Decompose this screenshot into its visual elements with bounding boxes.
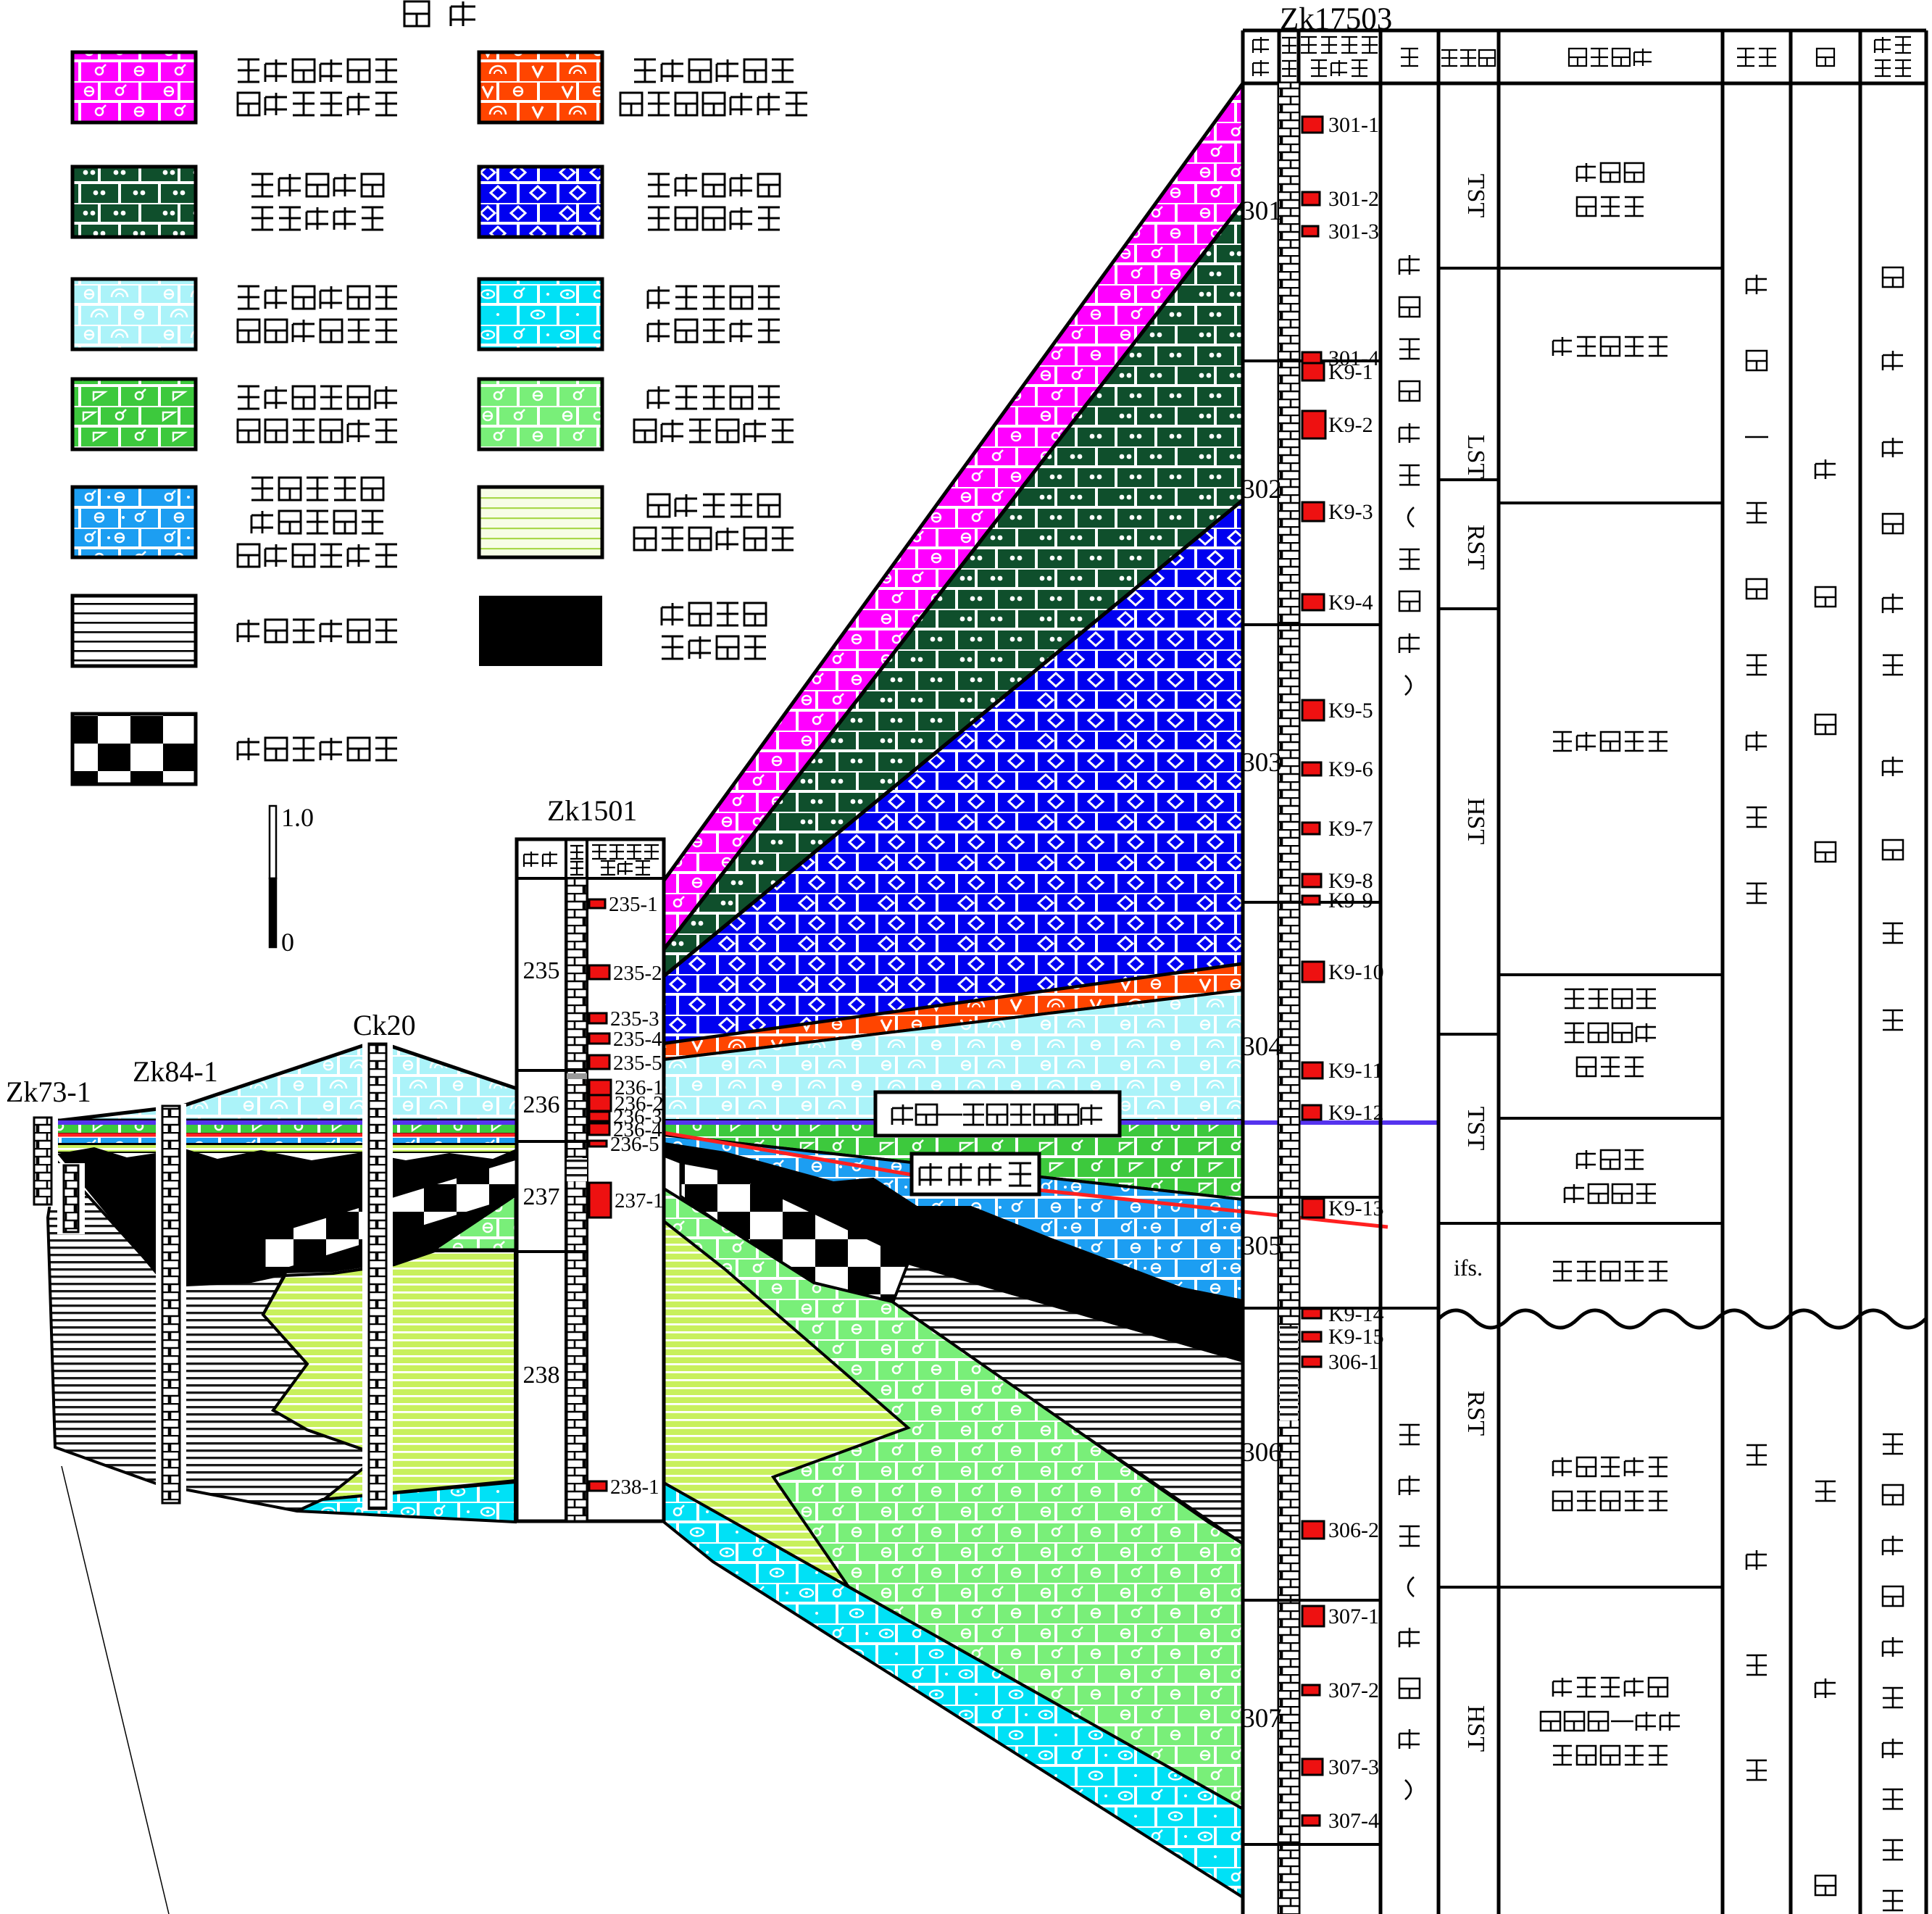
svg-text:K9-6: K9-6	[1328, 757, 1373, 781]
svg-text:303: 303	[1241, 748, 1282, 778]
svg-text:1.0: 1.0	[281, 803, 314, 832]
svg-text:238-1: 238-1	[610, 1476, 659, 1499]
svg-text:Zk73-1: Zk73-1	[6, 1075, 91, 1108]
svg-text:235: 235	[523, 957, 560, 984]
svg-text:K9-7: K9-7	[1328, 817, 1373, 841]
svg-text:K9-14: K9-14	[1328, 1302, 1384, 1326]
svg-text:238: 238	[523, 1362, 560, 1389]
svg-text:301-3: 301-3	[1328, 220, 1379, 244]
svg-text:307-3: 307-3	[1328, 1755, 1379, 1779]
svg-text:Zk1501: Zk1501	[547, 794, 637, 827]
svg-text:307-2: 307-2	[1328, 1678, 1379, 1702]
svg-text:301-2: 301-2	[1328, 187, 1379, 211]
svg-text:236-5: 236-5	[610, 1133, 659, 1156]
svg-text:ifs.: ifs.	[1454, 1254, 1483, 1281]
svg-text:235-1: 235-1	[609, 893, 658, 916]
svg-text:HST: HST	[1462, 798, 1489, 844]
svg-text:0: 0	[281, 928, 294, 957]
svg-text:Zk84-1: Zk84-1	[133, 1055, 218, 1088]
svg-text:305: 305	[1241, 1231, 1282, 1261]
svg-text:HST: HST	[1462, 1705, 1489, 1752]
svg-text:302: 302	[1241, 475, 1282, 504]
svg-text:301: 301	[1241, 196, 1282, 226]
svg-text:K9-12: K9-12	[1328, 1101, 1384, 1125]
svg-text:K9-13: K9-13	[1328, 1197, 1384, 1220]
svg-text:301-1: 301-1	[1328, 113, 1379, 137]
svg-text:RST: RST	[1462, 1391, 1489, 1436]
svg-text:235-2: 235-2	[613, 962, 662, 985]
svg-text:307-1: 307-1	[1328, 1605, 1379, 1628]
svg-text:K9-4: K9-4	[1328, 591, 1373, 615]
svg-text:K9-9: K9-9	[1328, 889, 1373, 912]
svg-text:237-1: 237-1	[615, 1189, 664, 1212]
svg-text:Ck20: Ck20	[353, 1009, 416, 1041]
svg-text:236: 236	[523, 1091, 560, 1118]
svg-text:RST: RST	[1462, 525, 1489, 570]
svg-text:K9-11: K9-11	[1328, 1059, 1383, 1083]
svg-text:306: 306	[1241, 1438, 1282, 1468]
svg-text:K9-15: K9-15	[1328, 1325, 1384, 1349]
svg-text:TST: TST	[1462, 174, 1489, 218]
svg-text:K9-2: K9-2	[1328, 413, 1373, 437]
svg-text:235-4: 235-4	[613, 1028, 662, 1051]
svg-text:LST: LST	[1462, 435, 1489, 479]
svg-text:307: 307	[1241, 1704, 1282, 1734]
svg-text:307-4: 307-4	[1328, 1809, 1379, 1833]
svg-text:235-5: 235-5	[613, 1052, 662, 1075]
svg-text:TST: TST	[1462, 1107, 1489, 1151]
svg-text:K9-10: K9-10	[1328, 960, 1384, 984]
svg-text:K9-1: K9-1	[1328, 360, 1373, 384]
svg-text:306-2: 306-2	[1328, 1518, 1379, 1542]
svg-text:K9-5: K9-5	[1328, 699, 1373, 723]
svg-text:304: 304	[1241, 1032, 1282, 1062]
svg-text:K9-3: K9-3	[1328, 500, 1373, 524]
svg-text:237: 237	[523, 1183, 560, 1210]
svg-text:306-1: 306-1	[1328, 1350, 1379, 1374]
